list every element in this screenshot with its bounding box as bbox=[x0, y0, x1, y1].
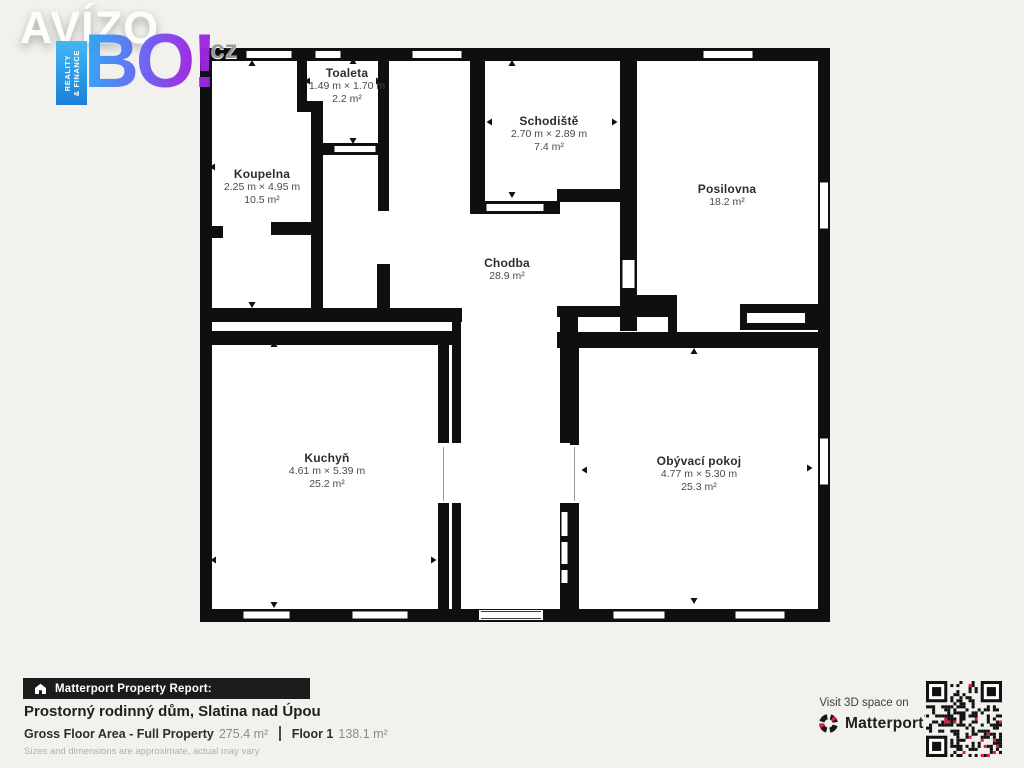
room-area: 18.2 m² bbox=[698, 196, 756, 209]
room-dims: 2.25 m × 4.95 m bbox=[224, 181, 300, 194]
room-label-chodba: Chodba 28.9 m² bbox=[484, 256, 530, 283]
room-name: Kuchyň bbox=[289, 451, 365, 465]
report-header-bar: Matterport Property Report: bbox=[23, 678, 310, 699]
room-name: Posilovna bbox=[698, 182, 756, 196]
gfa-label: Gross Floor Area - Full Property bbox=[24, 727, 214, 741]
room-label-schodiste: Schodiště 2.70 m × 2.89 m 7.4 m² bbox=[511, 114, 587, 154]
room-name: Schodiště bbox=[511, 114, 587, 128]
room-area: 25.3 m² bbox=[657, 481, 742, 494]
floor-label: Floor 1 bbox=[292, 727, 334, 741]
room-label-posilovna: Posilovna 18.2 m² bbox=[698, 182, 756, 209]
report-label: Matterport Property Report: bbox=[55, 683, 212, 695]
room-dims: 2.70 m × 2.89 m bbox=[511, 128, 587, 141]
matterport-mark-icon bbox=[818, 713, 839, 734]
matterport-floorplan-report: Toaleta 1.49 m × 1.70 m 2.2 m² Koupelna … bbox=[0, 0, 1024, 768]
room-name: Toaleta bbox=[309, 66, 385, 80]
divider bbox=[279, 726, 281, 741]
room-area: 2.2 m² bbox=[309, 93, 385, 106]
room-label-obyvaci-pokoj: Obývací pokoj 4.77 m × 5.30 m 25.3 m² bbox=[657, 454, 742, 494]
matterport-logo: Matterport’ bbox=[818, 713, 926, 734]
room-label-koupelna: Koupelna 2.25 m × 4.95 m 10.5 m² bbox=[224, 167, 300, 207]
room-dims: 1.49 m × 1.70 m bbox=[309, 80, 385, 93]
house-icon bbox=[34, 683, 47, 695]
room-area: 10.5 m² bbox=[224, 194, 300, 207]
floor-value: 138.1 m² bbox=[338, 727, 387, 741]
room-dims: 4.77 m × 5.30 m bbox=[657, 468, 742, 481]
room-dims: 4.61 m × 5.39 m bbox=[289, 465, 365, 478]
property-title: Prostorný rodinný dům, Slatina nad Úpou bbox=[24, 703, 321, 720]
room-area: 7.4 m² bbox=[511, 141, 587, 154]
area-summary: Gross Floor Area - Full Property 275.4 m… bbox=[24, 726, 388, 741]
disclaimer: Sizes and dimensions are approximate, ac… bbox=[24, 746, 260, 757]
visit-3d-label: Visit 3D space on bbox=[813, 697, 915, 709]
room-label-toaleta: Toaleta 1.49 m × 1.70 m 2.2 m² bbox=[309, 66, 385, 106]
qr-code bbox=[926, 681, 1002, 757]
avizo-wordmark: AVÍZO bbox=[20, 2, 159, 54]
matterport-wordmark: Matterport’ bbox=[845, 715, 926, 733]
room-area: 25.2 m² bbox=[289, 478, 365, 491]
gfa-value: 275.4 m² bbox=[219, 727, 268, 741]
reality-finance-ribbon: REALITY& FINANCE bbox=[56, 41, 87, 105]
room-label-kuchyn: Kuchyň 4.61 m × 5.39 m 25.2 m² bbox=[289, 451, 365, 491]
room-name: Chodba bbox=[484, 256, 530, 270]
room-area: 28.9 m² bbox=[484, 270, 530, 283]
room-name: Obývací pokoj bbox=[657, 454, 742, 468]
room-name: Koupelna bbox=[224, 167, 300, 181]
